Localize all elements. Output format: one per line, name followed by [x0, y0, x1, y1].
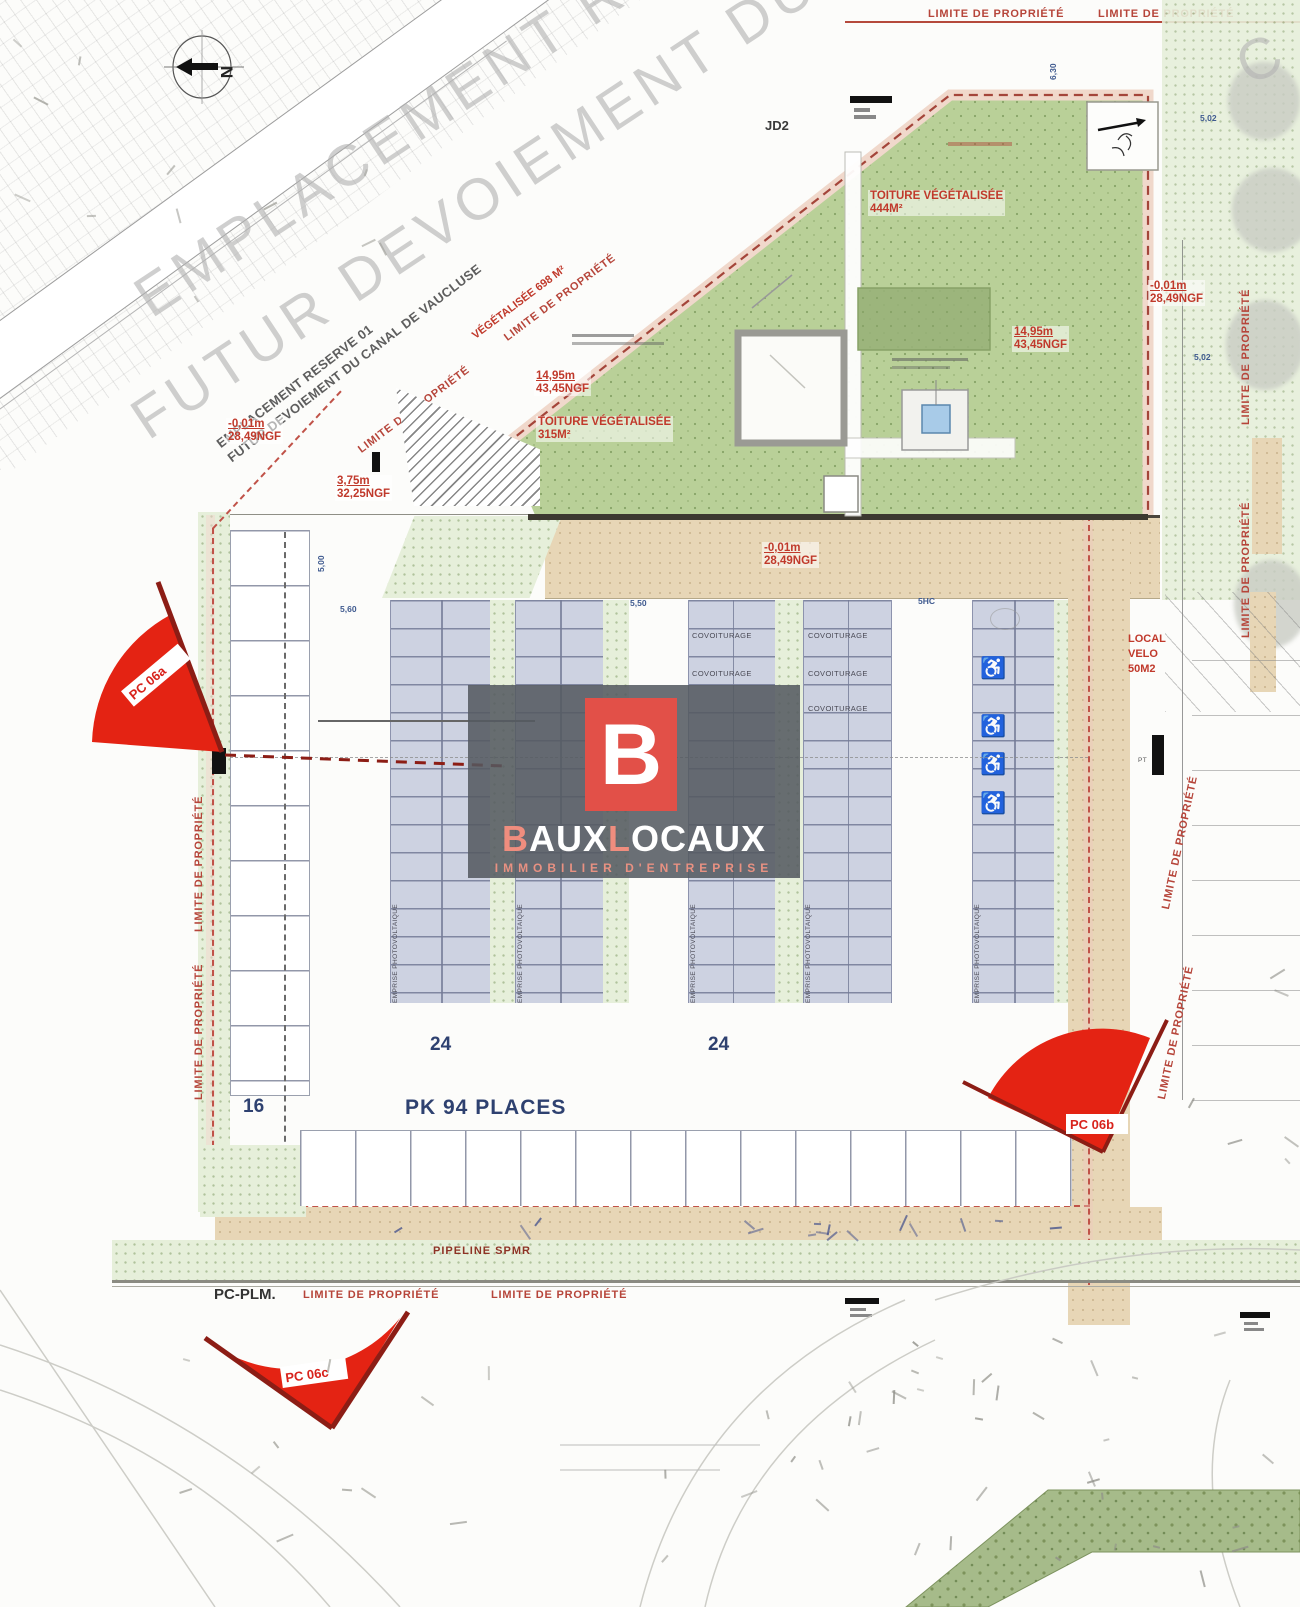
- drive-lane-right: [1068, 515, 1130, 1325]
- local-velo-label: LOCALVELO50M2: [1128, 632, 1166, 677]
- roof-notch-box: [1087, 102, 1158, 170]
- watermark-fragment: C: [1225, 20, 1293, 99]
- survey-mark: [664, 1469, 666, 1478]
- green-roof: [300, 70, 1180, 540]
- ramp-marker: [372, 452, 380, 472]
- survey-mark: [1101, 1493, 1104, 1500]
- compass-bar: [192, 63, 218, 70]
- survey-mark: [981, 1372, 992, 1382]
- bauxlocaux-title: BAUXLOCAUX: [468, 818, 800, 860]
- benchmark-symbol-right: [1240, 1312, 1270, 1318]
- compass-n: N: [217, 66, 236, 78]
- covoiturage-label: COVOITURAGE: [692, 669, 752, 678]
- survey-mark: [276, 1534, 293, 1543]
- roof-area-444-label: TOITURE VÉGÉTALISÉE444M²: [868, 190, 1005, 216]
- right-tan-patch-2: [1250, 592, 1276, 692]
- survey-mark: [182, 1358, 189, 1362]
- handicap-icon: ♿: [980, 754, 1006, 775]
- survey-mark: [342, 1489, 352, 1492]
- top-boundary-line: [845, 21, 1300, 23]
- survey-mark: [1232, 1545, 1249, 1552]
- survey-mark: [661, 1555, 669, 1563]
- limite-label-right-3: LIMITE DE PROPRIÉTÉ: [1160, 775, 1200, 911]
- covoiturage-label: COVOITURAGE: [692, 631, 752, 640]
- roof-elev-left: 14,95m43,45NGF: [534, 370, 591, 396]
- emprise-label: EMPRISE PHOTOVOLTAIQUE: [805, 904, 812, 1003]
- handicap-icon: ♿: [980, 658, 1006, 679]
- boundary-left-dashed: [212, 528, 214, 1207]
- survey-mark: [866, 1447, 879, 1453]
- survey-mark: [360, 1487, 376, 1498]
- limite-label-right-4: LIMITE DE PROPRIÉTÉ: [1156, 965, 1196, 1101]
- survey-mark: [263, 201, 277, 210]
- survey-mark: [1103, 1439, 1110, 1443]
- survey-mark: [1232, 1525, 1240, 1529]
- survey-mark: [87, 215, 96, 217]
- survey-mark: [175, 209, 181, 224]
- dim-560: 5,60: [340, 604, 357, 614]
- survey-mark: [912, 1341, 919, 1347]
- pk-places-label: PK 94 PLACES: [405, 1096, 566, 1120]
- survey-mark: [975, 1417, 984, 1420]
- limite-label-right-1: LIMITE DE PROPRIÉTÉ: [1240, 289, 1252, 425]
- pc-06a-label: PC 06a: [126, 663, 169, 703]
- limite-label-top-2: LIMITE DE PROPRIÉTÉ: [1098, 8, 1234, 20]
- pc-06c-marker: PC 06c: [205, 1312, 408, 1428]
- survey-mark: [892, 1390, 895, 1404]
- count-24-left: 24: [430, 1034, 451, 1056]
- survey-mark: [858, 1411, 862, 1425]
- benchmark-symbol-mid: [845, 1298, 879, 1304]
- dim-5hc: 5HC: [918, 596, 935, 606]
- survey-mark: [14, 194, 31, 203]
- count-24-right: 24: [708, 1034, 729, 1056]
- survey-mark: [891, 1390, 906, 1399]
- limite-label-bottom-1: LIMITE DE PROPRIÉTÉ: [303, 1289, 439, 1301]
- survey-mark: [251, 1465, 261, 1474]
- covoiturage-label: COVOITURAGE: [808, 631, 868, 640]
- survey-mark: [914, 1543, 921, 1556]
- tree-blob: [1232, 168, 1300, 252]
- elev-ramp: 3,75m32,25NGF: [335, 475, 392, 501]
- survey-mark: [193, 296, 198, 303]
- survey-mark: [1114, 1543, 1117, 1550]
- limite-label-left-2: LIMITE DE PROPRIÉTÉ: [193, 964, 205, 1100]
- survey-mark: [327, 1359, 332, 1373]
- right-tan-patch-1: [1252, 438, 1282, 554]
- survey-mark: [790, 1456, 796, 1463]
- survey-mark: [847, 1416, 851, 1426]
- survey-mark: [421, 1396, 434, 1406]
- survey-mark: [976, 1486, 988, 1501]
- neighbor-parking-rows: [1192, 660, 1300, 1110]
- survey-mark: [1055, 1557, 1061, 1562]
- elev-center: -0,01m28,49NGF: [762, 542, 819, 568]
- survey-mark: [272, 1441, 279, 1449]
- survey-mark: [1088, 1471, 1096, 1486]
- survey-mark: [166, 165, 175, 175]
- emprise-label: EMPRISE PHOTOVOLTAIQUE: [690, 904, 697, 1003]
- survey-mark: [1227, 1138, 1242, 1144]
- dim-502-b: 5,02: [1194, 352, 1211, 362]
- roof-elev-right: 14,95m43,45NGF: [1012, 326, 1069, 352]
- site-plan: N EMPLACEMENT RESERVE 01 FUTUR DEVOIEMEN…: [0, 0, 1300, 1607]
- limite-label-left-1: LIMITE DE PROPRIÉTÉ: [193, 796, 205, 932]
- survey-mark: [488, 1366, 490, 1380]
- limite-label-bottom-2: LIMITE DE PROPRIÉTÉ: [491, 1289, 627, 1301]
- survey-mark: [1285, 1158, 1291, 1164]
- survey-mark: [996, 1386, 1000, 1401]
- survey-mark: [815, 1498, 829, 1511]
- survey-mark: [34, 96, 49, 105]
- survey-mark: [818, 1460, 823, 1470]
- survey-mark: [936, 1356, 943, 1360]
- left-stall-column: [230, 530, 310, 1096]
- survey-mark: [179, 1488, 192, 1494]
- covoiturage-label: COVOITURAGE: [808, 669, 868, 678]
- boundary-right-dashed: [1088, 515, 1090, 1285]
- survey-mark: [949, 1536, 952, 1550]
- bauxlocaux-subtitle: IMMOBILIER D'ENTREPRISE: [468, 861, 800, 875]
- survey-mark: [1269, 969, 1285, 980]
- dim-502-a: 5,02: [1200, 113, 1217, 123]
- pt-label: PT: [1138, 757, 1147, 764]
- elev-left-ground: -0,01m28,49NGF: [226, 418, 283, 444]
- handicap-icon: ♿: [980, 716, 1006, 737]
- limite-label-right-2: LIMITE DE PROPRIÉTÉ: [1240, 502, 1252, 638]
- elev-right: -0,01m28,49NGF: [1148, 280, 1205, 306]
- parking-strip-d: [803, 600, 892, 1003]
- survey-mark: [1052, 1338, 1063, 1345]
- hedge-band: [906, 1490, 1300, 1607]
- roof-skylight: [738, 333, 844, 443]
- survey-mark: [1132, 1376, 1138, 1379]
- survey-mark: [1200, 1570, 1206, 1587]
- survey-mark: [765, 1410, 769, 1420]
- dim-500: 5,00: [316, 555, 326, 572]
- survey-mark: [848, 1381, 856, 1393]
- pc-plm-label: PC-PLM.: [214, 1286, 276, 1303]
- survey-mark: [1285, 1136, 1300, 1148]
- roof-small-box: [824, 476, 858, 512]
- neighbor-parking-diagonal: [1165, 592, 1300, 712]
- survey-mark: [1275, 989, 1289, 996]
- survey-mark: [1033, 1412, 1045, 1420]
- emprise-label: EMPRISE PHOTOVOLTAIQUE: [392, 904, 399, 1003]
- roof-area-315-label: TOITURE VÉGÉTALISÉE315M²: [536, 416, 673, 442]
- survey-mark: [1214, 1332, 1226, 1337]
- tree-blob: [1226, 300, 1300, 390]
- pipeline-label: PIPELINE SPMR: [433, 1245, 531, 1257]
- survey-mark: [78, 57, 82, 66]
- emprise-label: EMPRISE PHOTOVOLTAIQUE: [517, 904, 524, 1003]
- limite-label-top-1: LIMITE DE PROPRIÉTÉ: [928, 8, 1064, 20]
- gate-marker-left: [212, 748, 226, 774]
- emprise-label: EMPRISE PHOTOVOLTAIQUE: [974, 904, 981, 1003]
- survey-mark: [12, 38, 21, 47]
- survey-mark: [1262, 1454, 1274, 1465]
- survey-mark: [741, 1490, 757, 1498]
- roof-blue-equipment: [922, 405, 950, 433]
- survey-mark: [917, 1388, 925, 1392]
- drive-lane-bottom: [215, 1207, 1162, 1240]
- gate-marker-right: [1152, 735, 1164, 775]
- bauxlocaux-logo-icon: B: [585, 698, 677, 811]
- dim-550: 5,50: [630, 598, 647, 608]
- covoiturage-label: COVOITURAGE: [808, 704, 868, 713]
- survey-mark: [911, 1370, 920, 1375]
- tree-blob: [1228, 62, 1300, 140]
- survey-mark: [450, 1521, 467, 1525]
- compass-arrow: [176, 58, 192, 76]
- north-compass: N: [158, 22, 250, 108]
- survey-mark: [972, 1379, 975, 1395]
- survey-mark: [1090, 1360, 1098, 1376]
- bauxlocaux-watermark: B BAUXLOCAUX IMMOBILIER D'ENTREPRISE: [468, 685, 800, 878]
- handicap-icon: ♿: [980, 793, 1006, 814]
- survey-mark: [1153, 1545, 1161, 1549]
- pipeline-band: [112, 1240, 1300, 1280]
- count-16: 16: [243, 1096, 264, 1118]
- survey-mark: [1087, 1478, 1100, 1484]
- survey-mark: [1188, 1098, 1195, 1108]
- pc-06c-label: PC 06c: [284, 1365, 329, 1386]
- bottom-stall-row: [300, 1130, 1072, 1206]
